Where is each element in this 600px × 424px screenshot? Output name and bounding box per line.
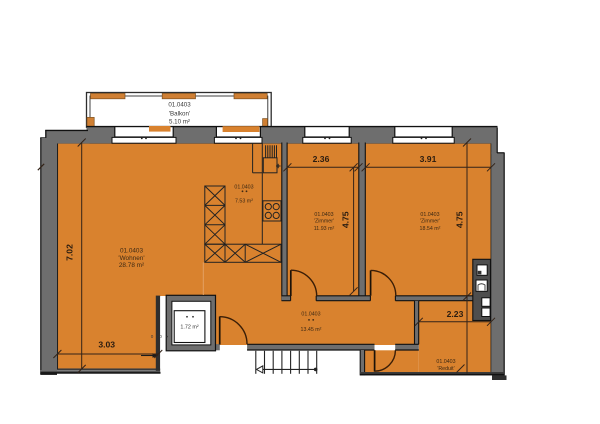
svg-text:0: 0 bbox=[151, 334, 154, 339]
svg-text:'Wohnen': 'Wohnen' bbox=[118, 255, 144, 262]
svg-text:1.72 m²: 1.72 m² bbox=[180, 324, 198, 330]
svg-text:3.03: 3.03 bbox=[98, 340, 115, 350]
svg-text:18.54 m²: 18.54 m² bbox=[420, 226, 441, 232]
svg-text:'Zimmer': 'Zimmer' bbox=[314, 218, 334, 224]
svg-text:5.10 m²: 5.10 m² bbox=[169, 118, 190, 125]
svg-text:2.23: 2.23 bbox=[447, 309, 464, 319]
svg-text:01.0403: 01.0403 bbox=[436, 359, 455, 365]
svg-text:13.45 m²: 13.45 m² bbox=[301, 327, 322, 333]
svg-text:2.36: 2.36 bbox=[313, 154, 330, 164]
svg-text:01.0403: 01.0403 bbox=[234, 184, 253, 190]
svg-text:0: 0 bbox=[159, 334, 162, 339]
svg-text:4.75: 4.75 bbox=[340, 211, 350, 228]
svg-text:3.91: 3.91 bbox=[420, 154, 437, 164]
svg-text:01.0403: 01.0403 bbox=[420, 212, 439, 218]
svg-text:'Balkon': 'Balkon' bbox=[169, 111, 190, 118]
svg-text:01.0403: 01.0403 bbox=[120, 248, 144, 255]
svg-text:01.0403: 01.0403 bbox=[301, 312, 320, 318]
svg-text:4.75: 4.75 bbox=[455, 211, 465, 228]
svg-text:'Zimmer': 'Zimmer' bbox=[420, 218, 440, 224]
svg-text:01.0403: 01.0403 bbox=[314, 212, 333, 218]
svg-text:7.53 m²: 7.53 m² bbox=[235, 199, 253, 205]
svg-text:11.93 m²: 11.93 m² bbox=[314, 226, 335, 232]
svg-text:'Reduit': 'Reduit' bbox=[437, 366, 454, 372]
svg-text:28.78 m²: 28.78 m² bbox=[119, 262, 144, 269]
svg-text:01.0403: 01.0403 bbox=[168, 101, 191, 108]
svg-text:7.02: 7.02 bbox=[65, 244, 75, 261]
